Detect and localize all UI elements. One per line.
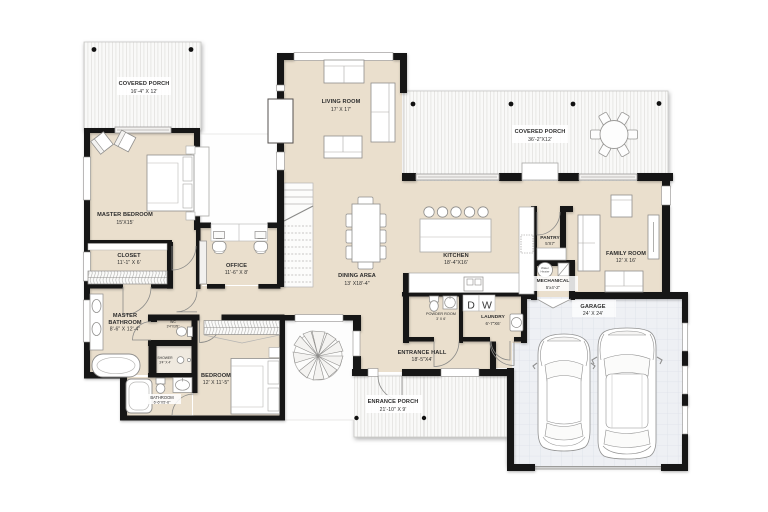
svg-text:11'-1" X 6': 11'-1" X 6'	[117, 260, 141, 266]
svg-text:CLOSET: CLOSET	[117, 253, 141, 259]
svg-text:ENTRANCE HALL: ENTRANCE HALL	[398, 350, 447, 356]
svg-text:24' X 24': 24' X 24'	[583, 311, 603, 317]
svg-text:8'-6" X 12'-4": 8'-6" X 12'-4"	[110, 327, 141, 333]
svg-text:COVERED PORCH: COVERED PORCH	[515, 129, 566, 135]
svg-text:BATHROOM: BATHROOM	[150, 395, 174, 400]
svg-text:6'-7"X6': 6'-7"X6'	[486, 321, 501, 326]
svg-text:11'-6" X 8': 11'-6" X 8'	[225, 270, 249, 276]
svg-text:GARAGE: GARAGE	[580, 304, 605, 310]
svg-text:Heater: Heater	[540, 270, 549, 274]
svg-text:18'-5"X4': 18'-5"X4'	[412, 357, 433, 363]
svg-text:MASTER: MASTER	[113, 313, 137, 319]
svg-text:12' X 11'-5": 12' X 11'-5"	[203, 380, 230, 386]
svg-text:17' X 17': 17' X 17'	[331, 107, 351, 113]
svg-text:BEDROOM: BEDROOM	[201, 373, 231, 379]
svg-text:DINING AREA: DINING AREA	[338, 273, 376, 279]
svg-text:3'4" X 4': 3'4" X 4'	[159, 361, 171, 365]
svg-text:3' X 6': 3' X 6'	[436, 317, 446, 321]
svg-text:OFFICE: OFFICE	[226, 263, 247, 269]
svg-text:FAMILY ROOM: FAMILY ROOM	[606, 251, 646, 257]
svg-text:6'-6"X5'-6": 6'-6"X5'-6"	[154, 401, 171, 405]
svg-text:POWDER ROOM: POWDER ROOM	[426, 312, 456, 316]
svg-text:21'-10" X 9': 21'-10" X 9'	[380, 407, 407, 413]
svg-text:ENRANCE PORCH: ENRANCE PORCH	[368, 399, 419, 405]
svg-text:COVERED PORCH: COVERED PORCH	[119, 81, 170, 87]
svg-text:LIVING ROOM: LIVING ROOM	[322, 99, 361, 105]
svg-text:W: W	[482, 300, 492, 312]
svg-text:D: D	[467, 300, 475, 312]
svg-text:5'x4'-2": 5'x4'-2"	[546, 285, 561, 290]
svg-text:KITCHEN: KITCHEN	[443, 253, 469, 259]
svg-text:36'-2"X12': 36'-2"X12'	[528, 137, 552, 143]
svg-text:16'-4" X 12': 16'-4" X 12'	[131, 89, 158, 95]
svg-text:13' X18'-4": 13' X18'-4"	[344, 281, 369, 287]
svg-text:18'-4"X16': 18'-4"X16'	[444, 260, 468, 266]
svg-text:BATHROOM: BATHROOM	[108, 320, 142, 326]
svg-text:5'X7': 5'X7'	[545, 241, 555, 246]
svg-text:WC: WC	[170, 320, 176, 324]
svg-text:12' X 16': 12' X 16'	[616, 258, 636, 264]
svg-text:LAUNDRY: LAUNDRY	[481, 314, 505, 320]
svg-text:MECHANICAL: MECHANICAL	[537, 278, 570, 284]
svg-text:3'4"X3'8": 3'4"X3'8"	[167, 325, 180, 329]
svg-text:MASTER BEDROOM: MASTER BEDROOM	[97, 212, 153, 218]
svg-text:SHOWER: SHOWER	[157, 356, 173, 360]
svg-text:15'X15': 15'X15'	[116, 220, 133, 226]
